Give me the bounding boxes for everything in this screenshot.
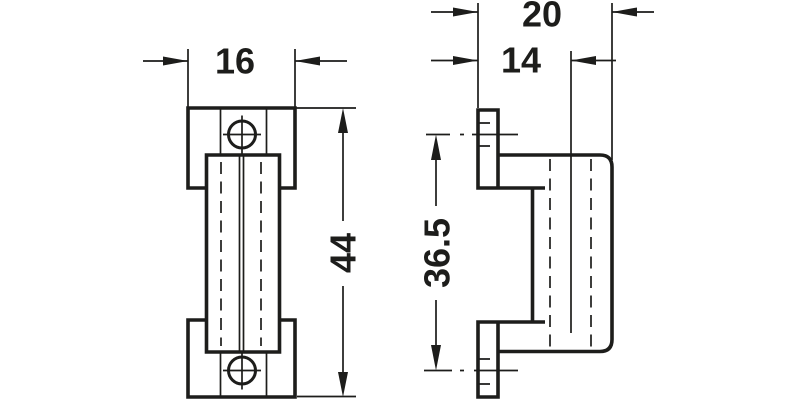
side-outline xyxy=(478,110,612,397)
front-center-seam xyxy=(240,155,244,352)
dim-side-hole-spacing: 36.5 xyxy=(417,135,458,371)
drawing-canvas: 16 44 20 14 36.5 xyxy=(0,0,800,400)
dim-side-body-depth: 14 xyxy=(431,40,616,158)
dim-front-width-label: 16 xyxy=(215,41,255,82)
dim-front-height: 44 xyxy=(295,108,364,397)
dim-front-width: 16 xyxy=(143,41,347,111)
dim-side-overall-depth: 20 xyxy=(431,0,654,160)
screw-hole-bottom xyxy=(223,352,261,390)
screw-hole-top xyxy=(223,116,261,154)
screw-hole-bottom-crosshair xyxy=(223,352,261,390)
front-hidden-edges xyxy=(221,162,261,346)
dim-front-height-label: 44 xyxy=(323,233,364,273)
technical-drawing: 16 44 20 14 36.5 xyxy=(0,0,800,400)
front-view xyxy=(188,108,295,397)
screw-hole-top-crosshair xyxy=(223,116,261,154)
dim-side-hole-spacing-label: 36.5 xyxy=(417,218,458,288)
dim-side-overall-depth-label: 20 xyxy=(522,0,562,35)
dim-side-body-depth-label: 14 xyxy=(501,40,541,81)
